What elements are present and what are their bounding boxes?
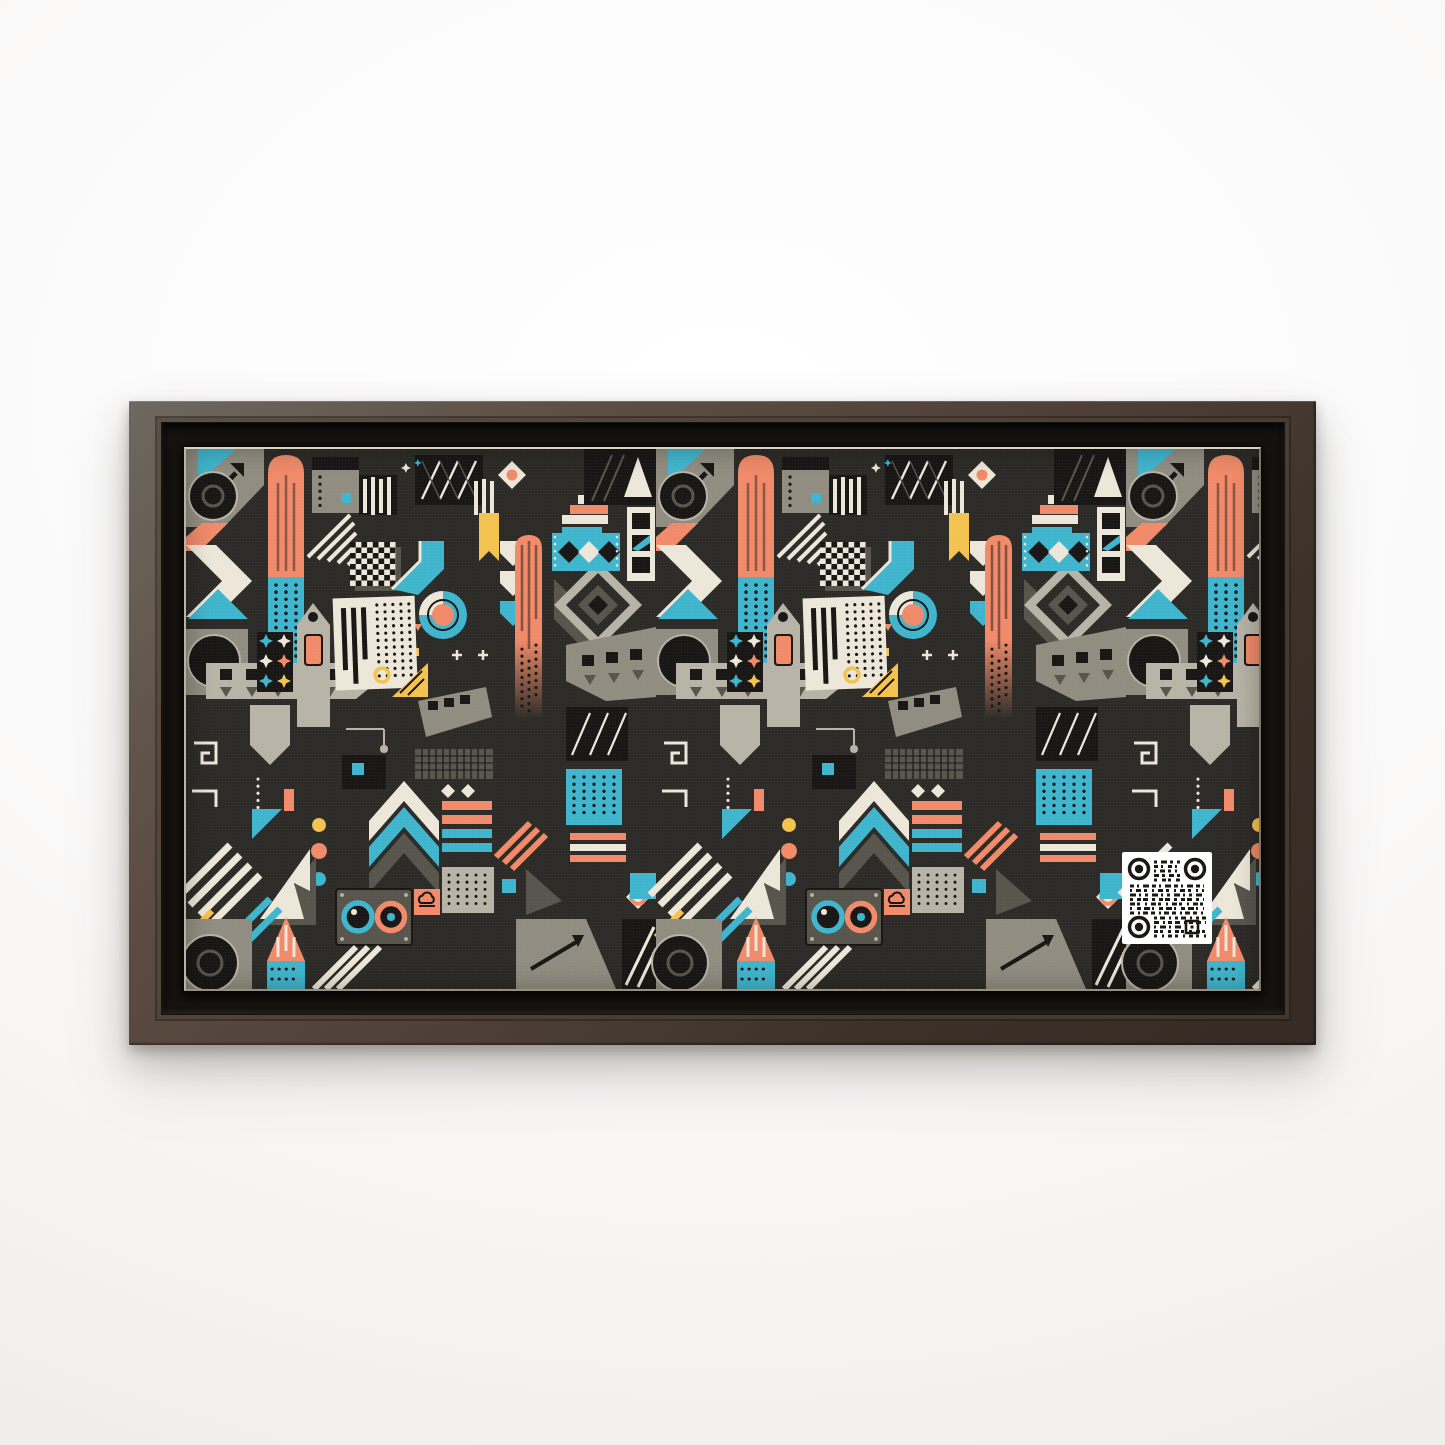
picture-frame: [129, 401, 1316, 1045]
geometric-artwork: [186, 449, 1259, 989]
canvas-print: [184, 447, 1261, 991]
qr-code: [1122, 852, 1212, 944]
wall-background: [0, 0, 1445, 1445]
